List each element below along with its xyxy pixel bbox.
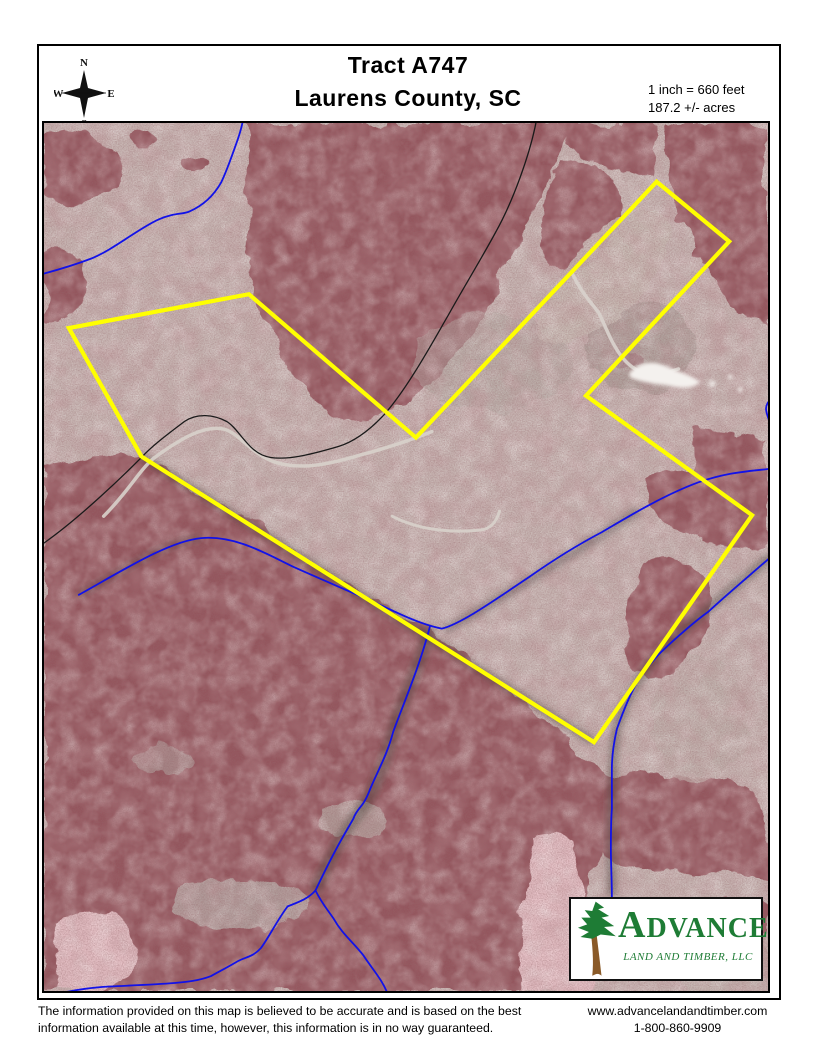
disclaimer-text: The information provided on this map is … — [38, 1003, 521, 1036]
acreage-text: 187.2 +/- acres — [648, 99, 745, 117]
aerial-map — [44, 123, 768, 991]
company-logo: ADVANCE LAND AND TIMBER, LLC — [569, 897, 763, 981]
scale-block: 1 inch = 660 feet 187.2 +/- acres — [648, 81, 745, 117]
logo-company-name: ADVANCE — [618, 905, 769, 949]
scale-text: 1 inch = 660 feet — [648, 81, 745, 99]
map-title: Tract A747 — [0, 52, 816, 79]
map-document-page: { "header": { "title_line1": "Tract A747… — [0, 0, 816, 1056]
disclaimer-line2: information available at this time, howe… — [38, 1020, 521, 1037]
contact-block: www.advancelandandtimber.com 1-800-860-9… — [575, 1003, 780, 1036]
phone-text: 1-800-860-9909 — [575, 1020, 780, 1037]
disclaimer-line1: The information provided on this map is … — [38, 1003, 521, 1020]
map-frame — [42, 121, 770, 993]
website-text: www.advancelandandtimber.com — [575, 1003, 780, 1020]
logo-company-subtitle: LAND AND TIMBER, LLC — [615, 951, 761, 963]
